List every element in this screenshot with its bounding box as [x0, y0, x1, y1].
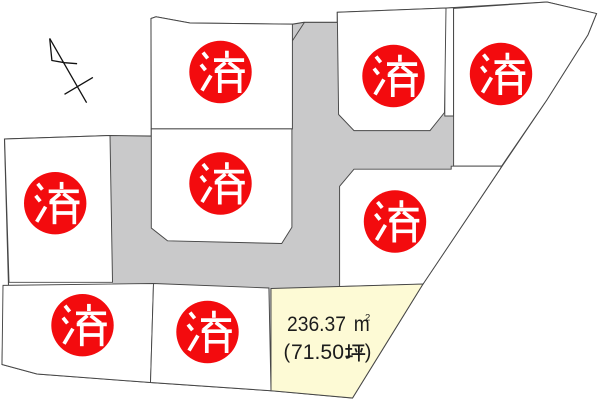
svg-text:2: 2	[365, 313, 370, 324]
svg-text:(: (	[284, 342, 291, 364]
svg-text:236.37: 236.37	[287, 312, 346, 336]
svg-text:71.50: 71.50	[291, 340, 344, 364]
svg-text:): )	[365, 342, 372, 364]
